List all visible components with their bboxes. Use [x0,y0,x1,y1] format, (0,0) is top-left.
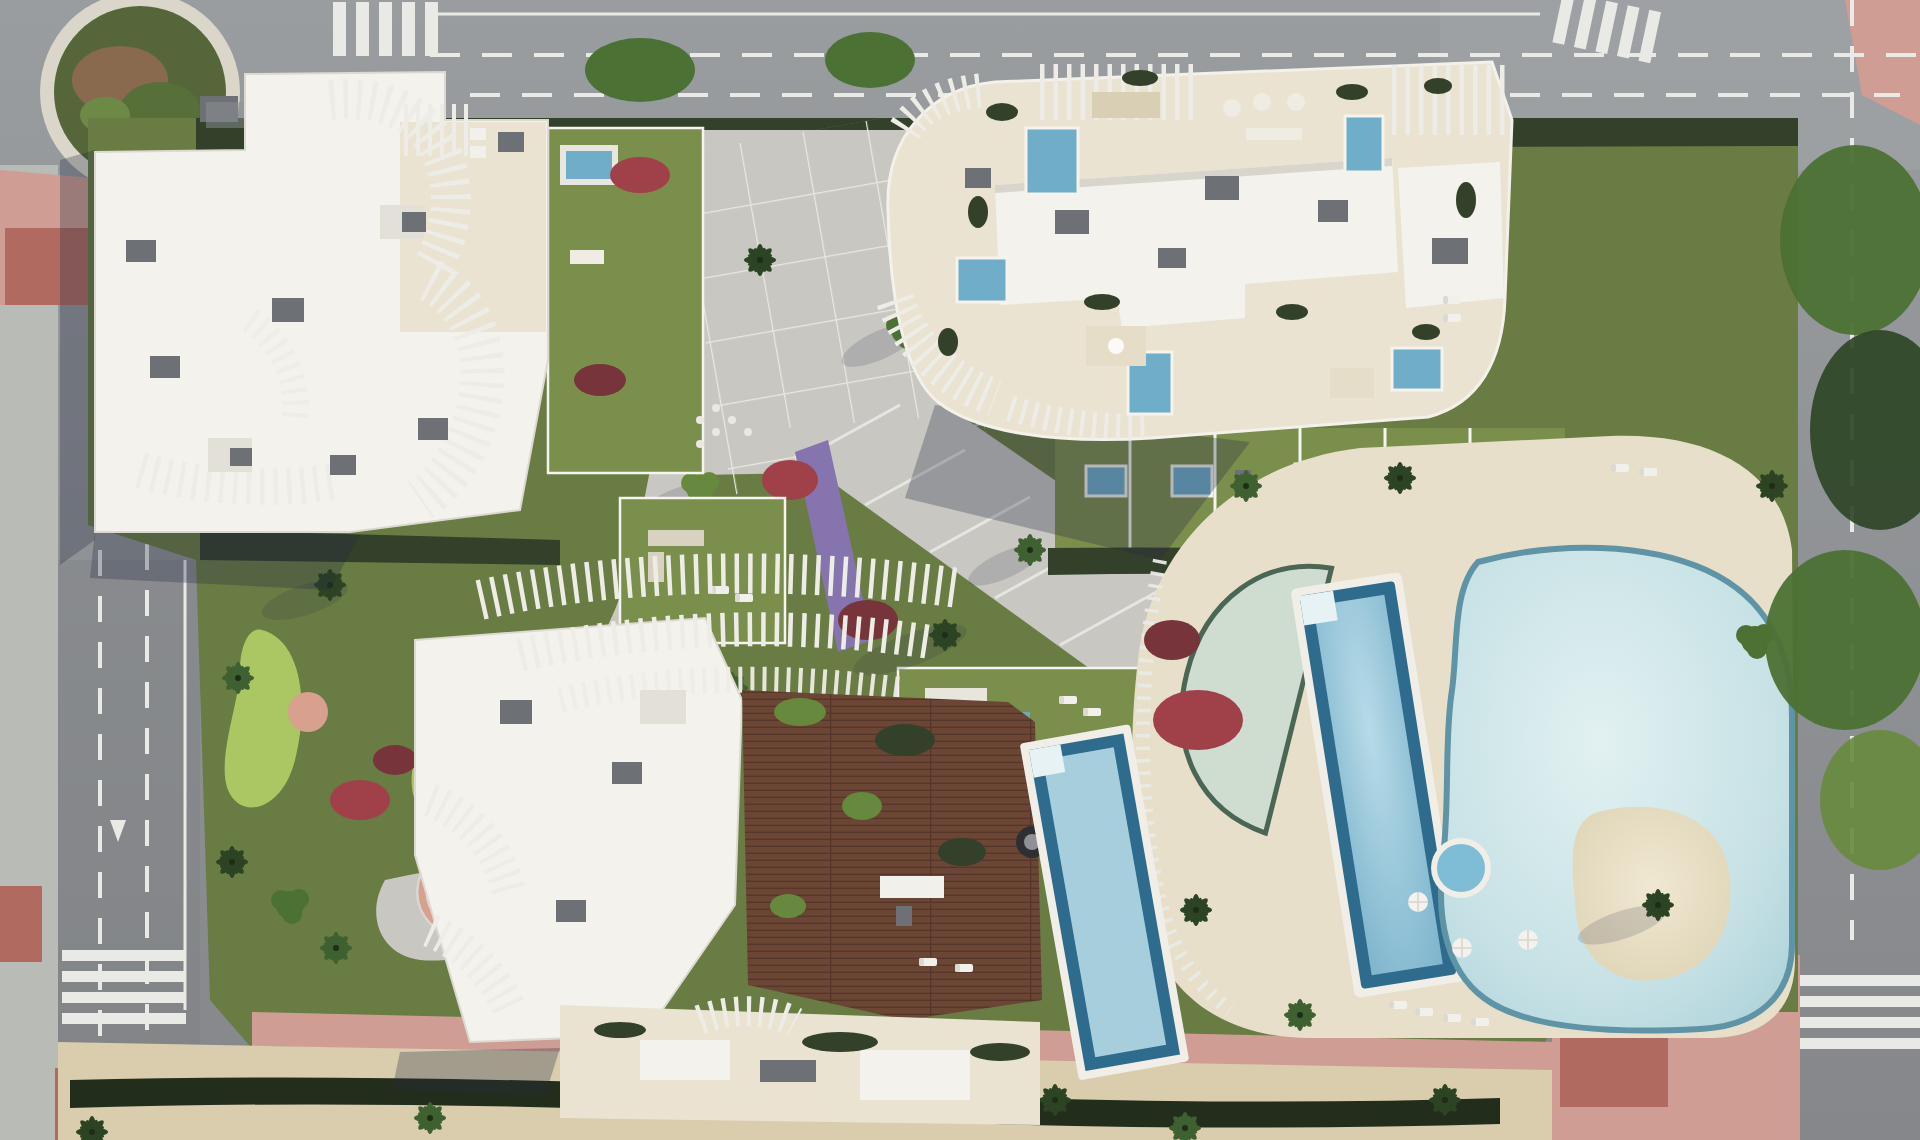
sun-lounger [735,594,753,602]
roof-box [760,1060,816,1082]
roof-box [500,700,532,724]
palm-tree [744,244,776,276]
maroon-bed [1144,620,1200,660]
lower-roof-piece [860,1050,970,1100]
sun-lounger [1083,708,1101,716]
palm-tree [1014,534,1046,566]
maroon-bed [373,745,417,775]
palm-tree [222,662,254,694]
lagoon-sand-island [1573,807,1731,981]
sun-lounger [1059,696,1077,704]
red-paving-w [0,886,42,962]
street-tree [825,32,915,88]
terrace-chair [470,146,486,158]
pool-area [1132,436,1795,1038]
roof-hatch [640,690,686,724]
palm-tree [1384,462,1416,494]
rooftop-pool-steps [1029,745,1065,778]
red-flower-bed [1153,690,1243,750]
palm-tree [1756,470,1788,502]
sun-lounger [955,964,973,972]
jacuzzi [1437,844,1485,892]
aerial-render [0,0,1920,1140]
building-shadow [392,1048,560,1096]
palm-tree [216,846,248,878]
court-pool [566,151,612,179]
roof-box [612,762,642,784]
palm-tree [1429,1084,1461,1116]
ne-roof-east [1398,162,1504,308]
rooftop-box [498,132,524,152]
palm-tree [1284,999,1316,1031]
sun-lounger [919,958,937,966]
garden-bench [570,250,604,264]
north-garden-court [548,128,703,473]
lower-roof-piece [640,1040,730,1080]
scene-canvas [0,0,1920,1140]
deck-table [880,876,944,898]
garden-sofa [648,530,704,546]
red-flower-bed [610,157,670,193]
street-tree [585,38,695,102]
deck-chair [896,906,912,926]
palm-tree [414,1102,446,1134]
red-flower-bed [330,780,390,820]
maroon-bed [574,364,626,396]
terrace-chair [470,128,486,140]
palm-tree [320,932,352,964]
lap-pool-steps [1299,591,1337,626]
island-palm [1642,889,1674,921]
building-shadow-west [60,150,95,565]
sidewalk-left [0,165,58,1140]
palm-tree [1039,1084,1071,1116]
palm-tree [1230,470,1262,502]
palm-tree [929,619,961,651]
sun-lounger [711,586,729,594]
red-flower-bed [762,460,818,500]
salmon-circle-pad [288,692,328,732]
roof-box [556,900,586,922]
palm-tree [1180,894,1212,926]
